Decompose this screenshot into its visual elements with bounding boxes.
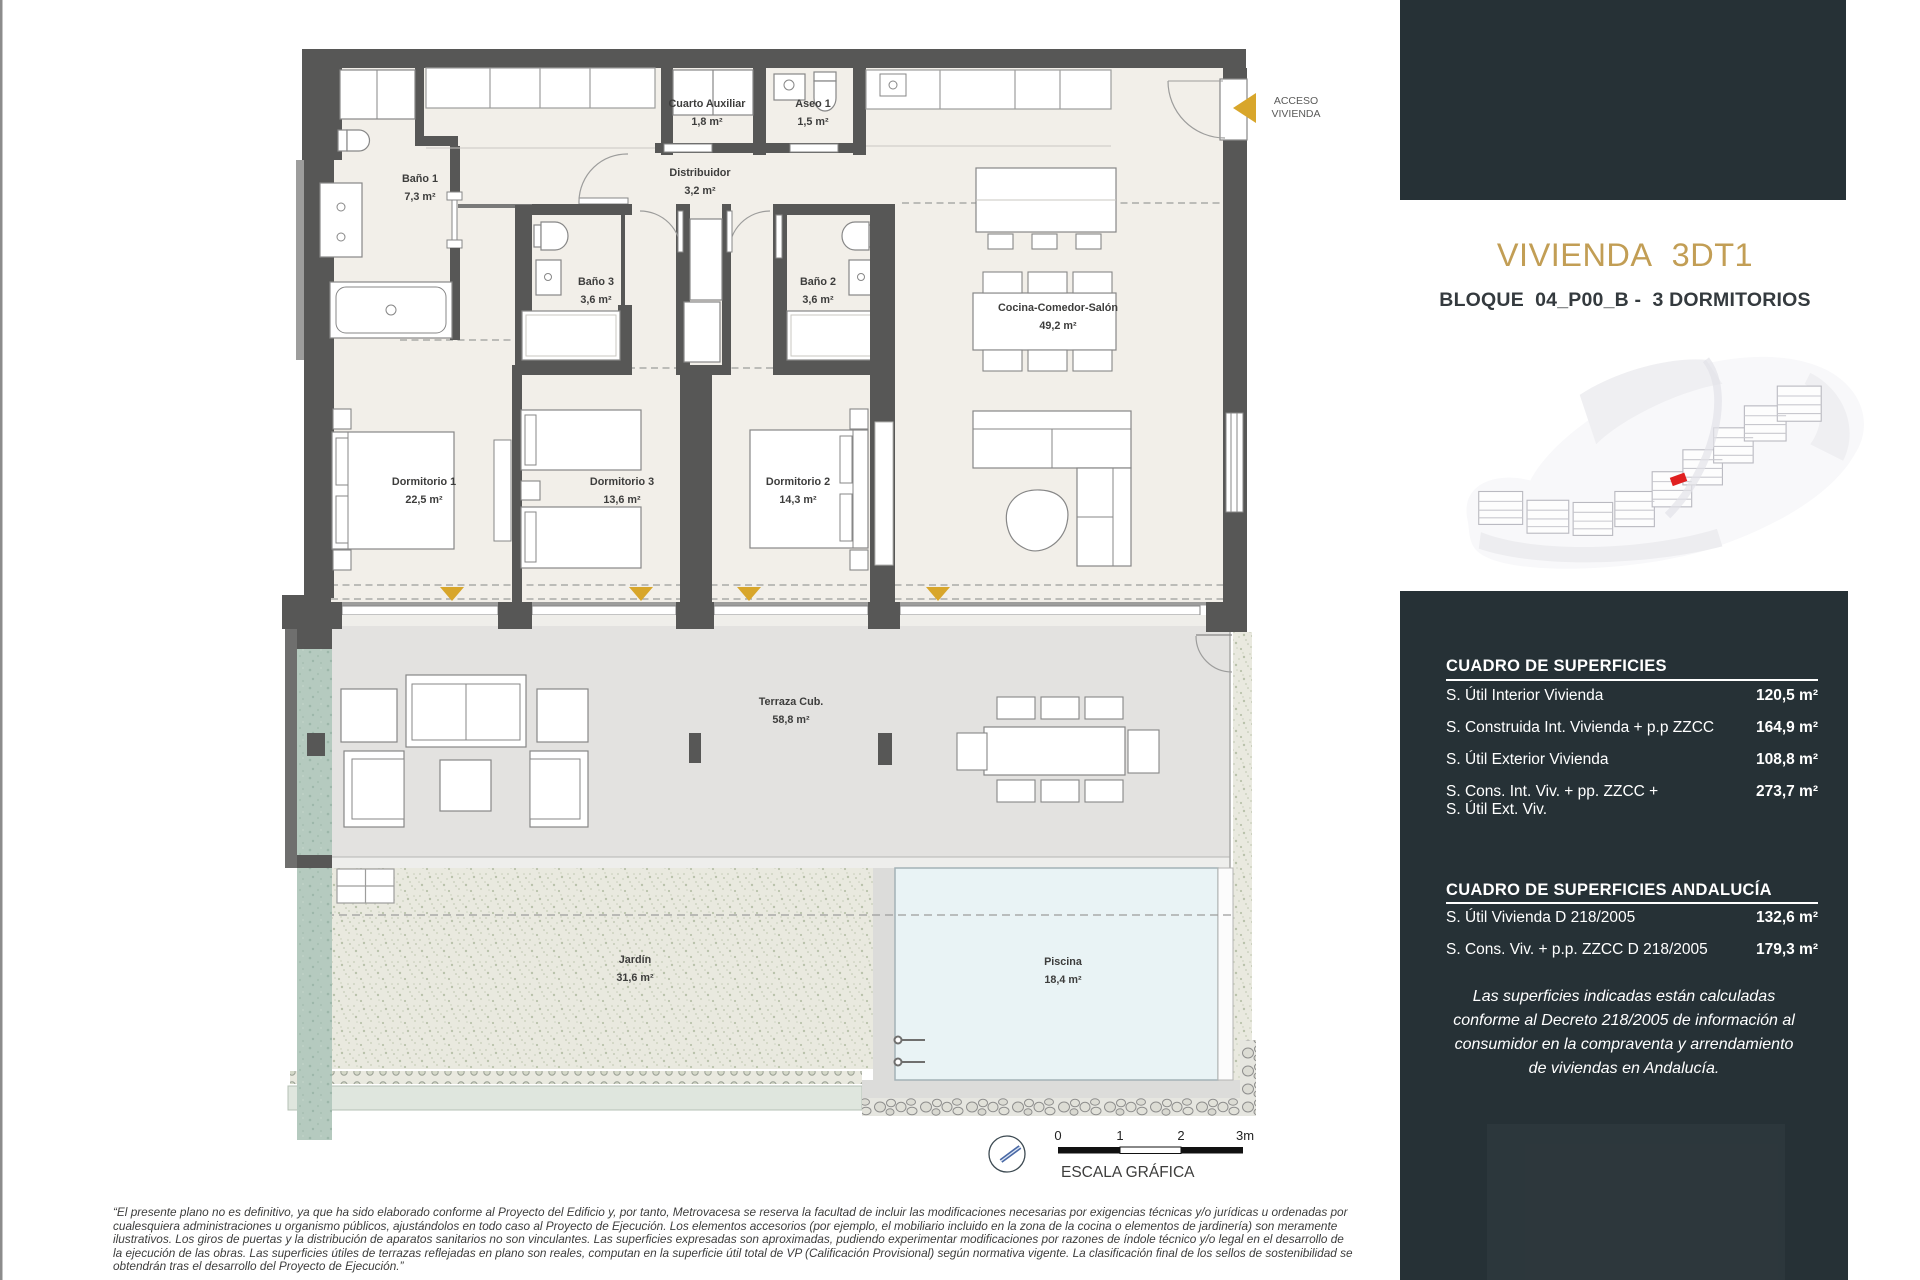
svg-text:Dormitorio 2: Dormitorio 2	[766, 476, 830, 488]
svg-text:Cocina-Comedor-Salón: Cocina-Comedor-Salón	[998, 302, 1118, 314]
svg-text:Baño 2: Baño 2	[800, 276, 836, 288]
svg-text:Terraza Cub.: Terraza Cub.	[759, 696, 824, 708]
svg-text:58,8 m²: 58,8 m²	[772, 714, 810, 726]
svg-text:Piscina: Piscina	[1044, 956, 1083, 968]
svg-text:7,3 m²: 7,3 m²	[404, 191, 436, 203]
svg-text:ESCALA GRÁFICA: ESCALA GRÁFICA	[1061, 1164, 1195, 1181]
svg-text:Baño 3: Baño 3	[578, 276, 614, 288]
svg-text:1: 1	[1116, 1128, 1123, 1143]
svg-text:3,6 m²: 3,6 m²	[802, 294, 834, 306]
svg-text:Jardín: Jardín	[619, 954, 651, 966]
svg-text:Dormitorio 1: Dormitorio 1	[392, 476, 456, 488]
svg-text:3,6 m²: 3,6 m²	[580, 294, 612, 306]
svg-text:22,5 m²: 22,5 m²	[405, 494, 443, 506]
svg-text:Aseo 1: Aseo 1	[795, 98, 830, 110]
svg-text:1,5 m²: 1,5 m²	[797, 116, 829, 128]
svg-text:Cuarto Auxiliar: Cuarto Auxiliar	[669, 98, 747, 110]
svg-text:3,2 m²: 3,2 m²	[684, 185, 716, 197]
svg-text:13,6 m²: 13,6 m²	[603, 494, 641, 506]
svg-text:3m: 3m	[1236, 1128, 1254, 1143]
svg-text:VIVIENDA: VIVIENDA	[1271, 108, 1320, 120]
svg-text:2: 2	[1177, 1128, 1184, 1143]
svg-text:Distribuidor: Distribuidor	[669, 167, 731, 179]
svg-text:18,4 m²: 18,4 m²	[1044, 974, 1082, 986]
svg-text:1,8 m²: 1,8 m²	[691, 116, 723, 128]
svg-text:14,3 m²: 14,3 m²	[779, 494, 817, 506]
svg-text:49,2 m²: 49,2 m²	[1039, 320, 1077, 332]
svg-text:0: 0	[1054, 1128, 1061, 1143]
svg-text:31,6 m²: 31,6 m²	[616, 972, 654, 984]
svg-text:Baño 1: Baño 1	[402, 173, 438, 185]
svg-text:Dormitorio 3: Dormitorio 3	[590, 476, 654, 488]
svg-text:ACCESO: ACCESO	[1274, 95, 1318, 107]
